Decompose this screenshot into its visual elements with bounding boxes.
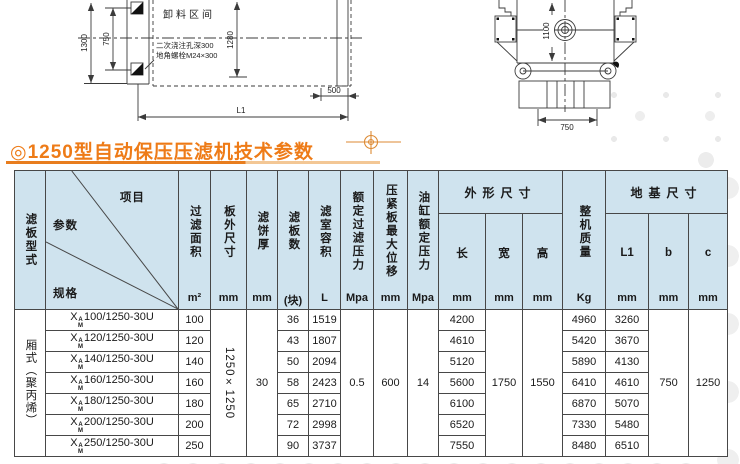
model-sub: M xyxy=(78,365,83,371)
col-cake-thickness-label: 滤饼厚 xyxy=(256,171,269,292)
col-filter-area-unit: m² xyxy=(188,292,201,309)
model-code: 140/1250-30U xyxy=(84,353,154,365)
chamber-volume-cell: 3737 xyxy=(309,436,341,457)
model-supsub: AM xyxy=(78,443,83,456)
plate-count-cell: 58 xyxy=(278,373,309,394)
col-length: 长mm xyxy=(439,214,486,310)
weight-cell: 8480 xyxy=(563,436,606,457)
catalog-page: 1300 750 卸料区间 1280 xyxy=(0,0,740,464)
l1-cell: 6510 xyxy=(606,436,649,457)
plate-count-cell: 90 xyxy=(278,436,309,457)
plate-count-cell: 50 xyxy=(278,352,309,373)
col-height: 高mm xyxy=(523,214,563,310)
area-cell: 120 xyxy=(179,331,211,352)
col-l1-label: L1 xyxy=(620,215,633,292)
col-width-label: 宽 xyxy=(498,215,510,292)
spec-cell: XAM100/1250-30U xyxy=(46,310,179,331)
col-cake-thickness: 滤饼厚 mm xyxy=(247,171,278,310)
area-cell: 200 xyxy=(179,415,211,436)
length-cell: 7550 xyxy=(439,436,486,457)
cake-thickness-cell: 30 xyxy=(247,310,278,457)
note-anchor-bolt: 地角螺栓M24×300 xyxy=(156,50,217,60)
diag-label-spec: 规格 xyxy=(53,285,78,301)
l1-cell: 3670 xyxy=(606,331,649,352)
col-width: 宽mm xyxy=(486,214,523,310)
col-c-unit: mm xyxy=(698,292,718,309)
model-supsub: AM xyxy=(78,422,83,435)
col-max-displacement-label: 压紧板最大位移 xyxy=(384,171,397,292)
note-grout-hole: 二次浇注孔深300 xyxy=(156,40,214,50)
col-max-displacement-unit: mm xyxy=(381,292,401,309)
model-sub: M xyxy=(78,323,83,329)
l1-cell: 3260 xyxy=(606,310,649,331)
weight-cell: 5420 xyxy=(563,331,606,352)
spec-cell: XAM250/1250-30U xyxy=(46,436,179,457)
group-overall-size: 外形尺寸 xyxy=(439,171,563,214)
col-machine-weight-label: 整机质量 xyxy=(578,171,591,292)
model-sub: M xyxy=(78,407,83,413)
model-x: X xyxy=(70,353,77,365)
col-plate-count-label: 滤板数 xyxy=(287,171,300,292)
max-displacement-cell: 600 xyxy=(374,310,408,457)
col-plate-size-unit: mm xyxy=(219,292,239,309)
length-cell: 5600 xyxy=(439,373,486,394)
length-cell: 5120 xyxy=(439,352,486,373)
area-cell: 140 xyxy=(179,352,211,373)
machine-end-view: 1100 xyxy=(495,0,636,132)
plate-type-value: 厢式（聚丙烯） xyxy=(24,339,37,427)
weight-cell: 7330 xyxy=(563,415,606,436)
chamber-volume-cell: 2094 xyxy=(309,352,341,373)
col-rated-filter-pressure: 额定过滤压力 Mpa xyxy=(341,171,374,310)
col-spec-diagonal: 项目 参数 规格 xyxy=(46,171,179,310)
weight-cell: 4960 xyxy=(563,310,606,331)
length-cell: 6100 xyxy=(439,394,486,415)
col-plate-size: 板外尺寸 mm xyxy=(211,171,247,310)
spec-cell: XAM140/1250-30U xyxy=(46,352,179,373)
col-cake-thickness-unit: mm xyxy=(252,292,272,309)
spec-table: 滤板型式 项目 参数 规格 过滤面积 m² xyxy=(14,170,728,457)
col-filter-area-label: 过滤面积 xyxy=(188,171,201,292)
plate-size-value: 1250×1250 xyxy=(222,347,235,419)
col-plate-count-unit: (块) xyxy=(284,292,302,309)
dim-label-500: 500 xyxy=(327,86,341,95)
model-x: X xyxy=(70,416,77,428)
section-title-bar: ◎1250型自动保压压滤机技术参数 xyxy=(10,137,314,164)
model-supsub: AM xyxy=(78,338,83,351)
model-supsub: AM xyxy=(78,359,83,372)
col-b-label: b xyxy=(665,215,672,292)
model-sub: M xyxy=(78,344,83,350)
dim-label-L1: L1 xyxy=(237,106,246,115)
area-cell: 250 xyxy=(179,436,211,457)
model-x: X xyxy=(70,374,77,386)
col-plate-count: 滤板数 (块) xyxy=(278,171,309,310)
col-cylinder-pressure: 油缸额定压力 Mpa xyxy=(408,171,439,310)
dim-label-750-left: 750 xyxy=(102,32,111,46)
title-underline xyxy=(6,161,380,164)
length-cell: 4200 xyxy=(439,310,486,331)
model-code: 160/1250-30U xyxy=(84,374,154,386)
model-sub: M xyxy=(78,449,83,455)
col-chamber-volume-unit: L xyxy=(321,292,328,309)
col-machine-weight-unit: Kg xyxy=(577,292,592,309)
plate-count-cell: 43 xyxy=(278,331,309,352)
plate-size-cell: 1250×1250 xyxy=(211,310,247,457)
c-cell: 1250 xyxy=(689,310,728,457)
model-x: X xyxy=(70,395,77,407)
col-rated-filter-pressure-label: 额定过滤压力 xyxy=(351,171,364,292)
col-plate-type: 滤板型式 xyxy=(15,171,46,310)
group-foundation-size: 地基尺寸 xyxy=(606,171,728,214)
col-l1-unit: mm xyxy=(617,292,637,309)
l1-cell: 4130 xyxy=(606,352,649,373)
col-b: bmm xyxy=(649,214,689,310)
model-supsub: AM xyxy=(78,401,83,414)
chamber-volume-cell: 2710 xyxy=(309,394,341,415)
weight-cell: 6410 xyxy=(563,373,606,394)
col-length-label: 长 xyxy=(456,215,468,292)
unload-zone-label: 卸料区间 xyxy=(163,8,215,21)
chamber-volume-cell: 1519 xyxy=(309,310,341,331)
table-row: 厢式（聚丙烯） XAM100/1250-30U 100 1250×1250 30… xyxy=(15,310,728,331)
height-cell: 1550 xyxy=(523,310,563,457)
plate-type-cell: 厢式（聚丙烯） xyxy=(15,310,46,457)
chamber-volume-cell: 1807 xyxy=(309,331,341,352)
spec-cell: XAM160/1250-30U xyxy=(46,373,179,394)
model-sub: M xyxy=(78,386,83,392)
plate-count-cell: 72 xyxy=(278,415,309,436)
dim-label-1300: 1300 xyxy=(80,34,89,52)
weight-cell: 5890 xyxy=(563,352,606,373)
parameters-table-wrap: 滤板型式 项目 参数 规格 过滤面积 m² xyxy=(14,170,728,457)
length-cell: 4610 xyxy=(439,331,486,352)
l1-cell: 5480 xyxy=(606,415,649,436)
diag-label-param: 参数 xyxy=(53,217,78,233)
col-c: cmm xyxy=(689,214,728,310)
l1-cell: 4610 xyxy=(606,373,649,394)
area-cell: 180 xyxy=(179,394,211,415)
model-code: 200/1250-30U xyxy=(84,416,154,428)
col-plate-type-label: 滤板型式 xyxy=(24,171,37,309)
model-x: X xyxy=(70,311,77,323)
col-width-unit: mm xyxy=(494,292,514,309)
b-cell: 750 xyxy=(649,310,689,457)
col-c-label: c xyxy=(705,215,711,292)
model-code: 250/1250-30U xyxy=(84,437,154,449)
col-rated-filter-pressure-unit: Mpa xyxy=(346,292,368,309)
spec-cell: XAM180/1250-30U xyxy=(46,394,179,415)
spec-cell: XAM120/1250-30U xyxy=(46,331,179,352)
model-code: 100/1250-30U xyxy=(84,311,154,323)
technical-drawing: 1300 750 卸料区间 1280 xyxy=(0,0,740,133)
page-title: ◎1250型自动保压压滤机技术参数 xyxy=(10,137,314,164)
length-cell: 6520 xyxy=(439,415,486,436)
area-cell: 160 xyxy=(179,373,211,394)
col-plate-size-label: 板外尺寸 xyxy=(222,171,235,292)
col-chamber-volume-label: 滤室容积 xyxy=(318,171,331,292)
weight-cell: 6870 xyxy=(563,394,606,415)
col-l1: L1mm xyxy=(606,214,649,310)
cylinder-pressure-cell: 14 xyxy=(408,310,439,457)
plate-count-cell: 65 xyxy=(278,394,309,415)
model-sub: M xyxy=(78,428,83,434)
model-x: X xyxy=(70,332,77,344)
chamber-volume-cell: 2998 xyxy=(309,415,341,436)
col-filter-area: 过滤面积 m² xyxy=(179,171,211,310)
col-height-label: 高 xyxy=(537,215,549,292)
dim-label-1100: 1100 xyxy=(542,22,551,40)
dim-label-1280: 1280 xyxy=(226,31,235,49)
model-x: X xyxy=(70,437,77,449)
diag-label-item: 项目 xyxy=(120,189,145,205)
col-b-unit: mm xyxy=(659,292,679,309)
col-max-displacement: 压紧板最大位移 mm xyxy=(374,171,408,310)
width-cell: 1750 xyxy=(486,310,523,457)
col-cylinder-pressure-unit: Mpa xyxy=(412,292,434,309)
model-code: 120/1250-30U xyxy=(84,332,154,344)
model-supsub: AM xyxy=(78,380,83,393)
spec-cell: XAM200/1250-30U xyxy=(46,415,179,436)
col-cylinder-pressure-label: 油缸额定压力 xyxy=(417,171,430,292)
model-code: 180/1250-30U xyxy=(84,395,154,407)
col-machine-weight: 整机质量 Kg xyxy=(563,171,606,310)
model-supsub: AM xyxy=(78,317,83,330)
col-height-unit: mm xyxy=(533,292,553,309)
area-cell: 100 xyxy=(179,310,211,331)
plate-count-cell: 36 xyxy=(278,310,309,331)
rated-filter-pressure-cell: 0.5 xyxy=(341,310,374,457)
col-length-unit: mm xyxy=(452,292,472,309)
registration-mark-icon xyxy=(344,130,404,156)
chamber-volume-cell: 2423 xyxy=(309,373,341,394)
dim-label-750-right: 750 xyxy=(560,123,574,132)
col-chamber-volume: 滤室容积 L xyxy=(309,171,341,310)
l1-cell: 5070 xyxy=(606,394,649,415)
foundation-plan-view: 1300 750 卸料区间 1280 xyxy=(78,0,362,121)
